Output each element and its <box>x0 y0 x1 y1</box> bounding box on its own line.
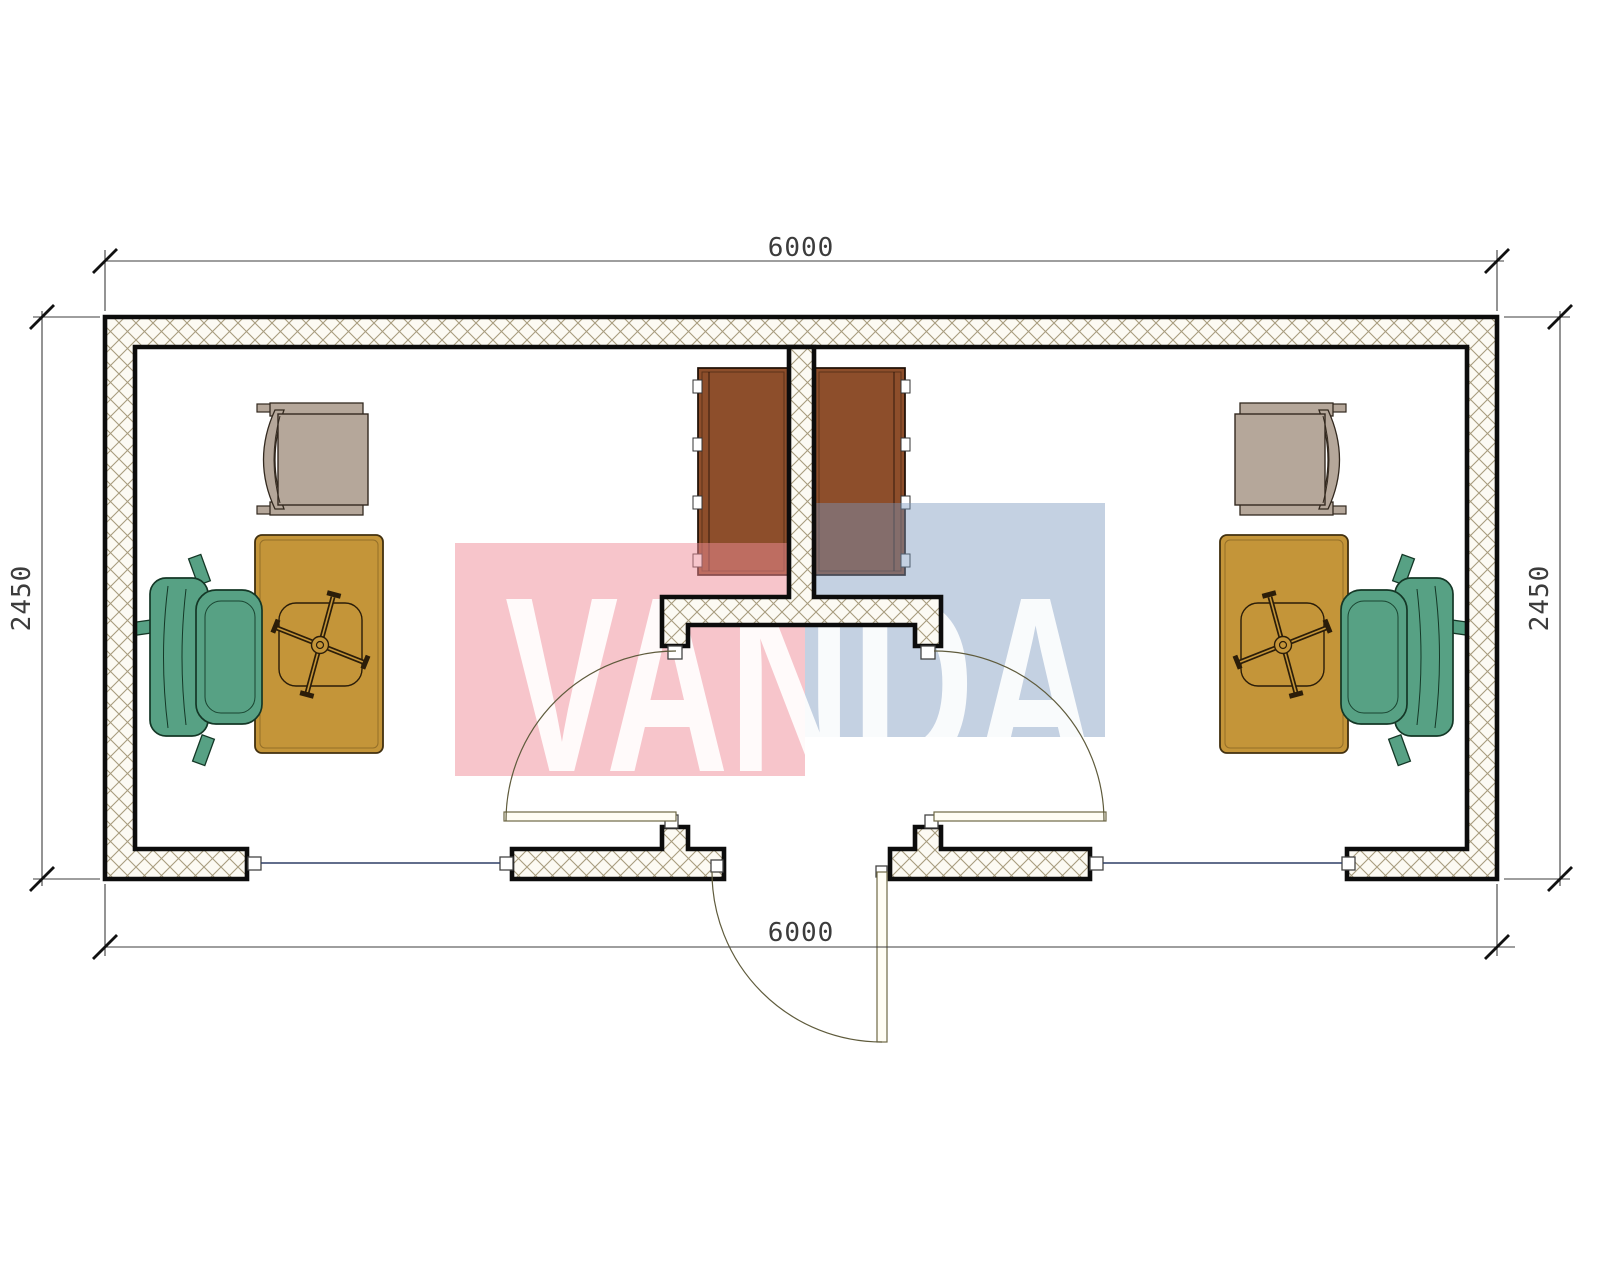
interior-door-leaf-left <box>504 812 676 821</box>
dim-text-bottom: 6000 <box>768 918 835 948</box>
dim-text-top: 6000 <box>768 233 835 263</box>
window-jamb <box>500 857 513 870</box>
interior-door-leaf-right <box>934 812 1106 821</box>
bottom-wall-right-of-entrance <box>890 827 1090 879</box>
entrance-door-leaf <box>877 872 887 1042</box>
vestibule-door-jamb-right <box>921 646 935 659</box>
window-jamb <box>248 857 261 870</box>
entrance-door-jamb <box>711 860 723 872</box>
floor-plan-page: VANDA <box>0 0 1600 1280</box>
window-jamb <box>1090 857 1103 870</box>
entrance-door-swing <box>712 872 882 1042</box>
dim-text-right: 2450 <box>1525 565 1555 632</box>
dim-text-left: 2450 <box>7 565 37 632</box>
watermark: VANDA <box>455 503 1105 824</box>
vestibule-door-jamb-left <box>668 646 682 659</box>
floor-plan: VANDA <box>0 0 1600 1280</box>
window-jamb <box>1342 857 1355 870</box>
bottom-wall-left-of-entrance <box>512 827 724 879</box>
